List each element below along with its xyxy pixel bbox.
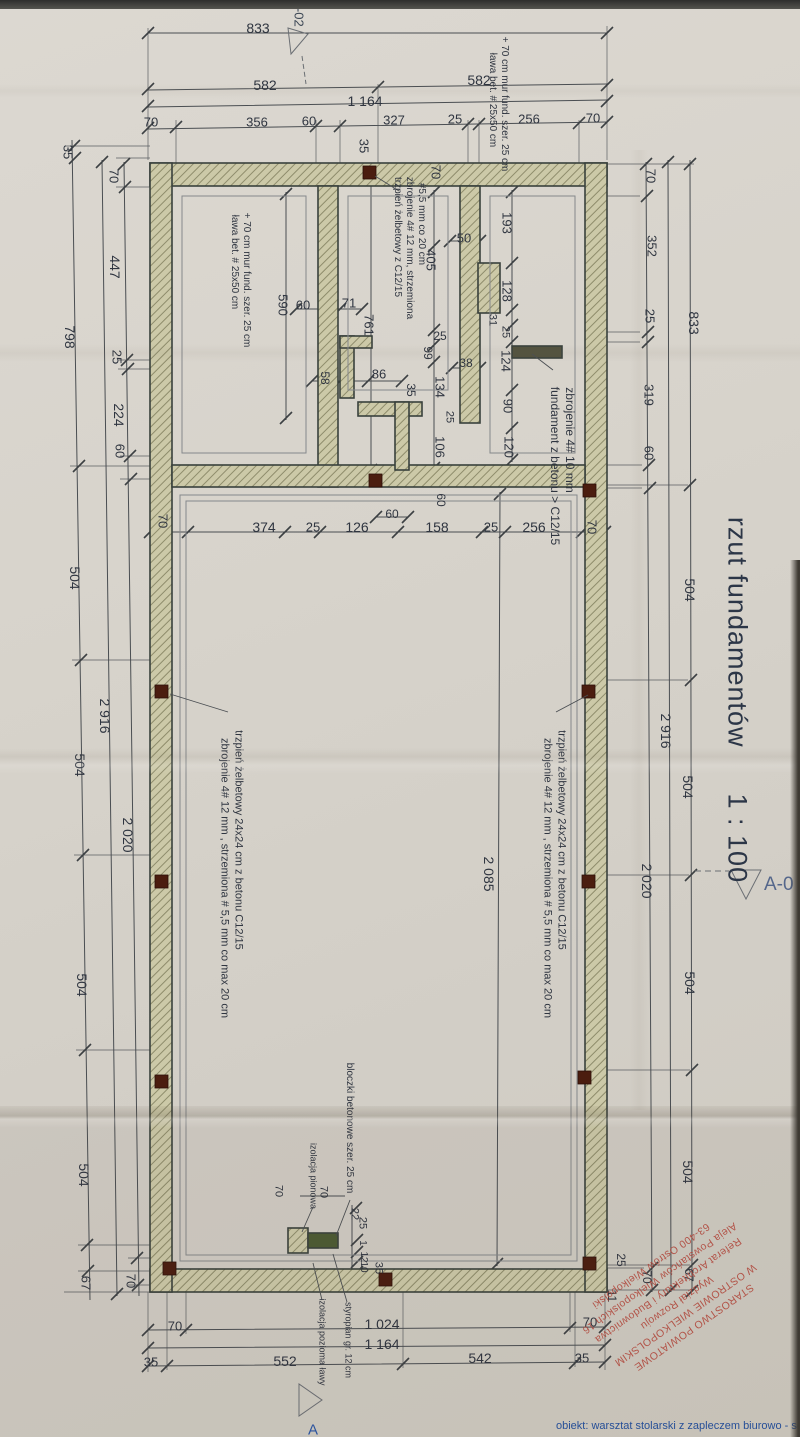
dimension-label: 833	[246, 21, 269, 35]
dimension-label: 833	[687, 311, 701, 334]
annotation-label: zbrojenie 4# 10 mm	[564, 387, 576, 492]
dimension-label: 504	[68, 566, 82, 589]
dimension-label: 70	[144, 116, 158, 129]
dimension-label: 504	[73, 753, 87, 776]
dimension-label: 31	[487, 314, 498, 326]
dimension-label: 38	[459, 357, 472, 369]
annotation-label: ława bet. # 25x50 cm	[487, 53, 497, 148]
dimension-label: 124	[500, 350, 513, 372]
dimension-label: 374	[252, 520, 275, 534]
dimension-label: 128	[501, 280, 514, 302]
annotation-label: fundament z betonu > C12/15	[549, 387, 561, 545]
dimension-label: 319	[643, 384, 656, 406]
annotation-label: #5,5 mm co 20 cm	[416, 183, 426, 265]
annotation-label: izolacja pionowa	[309, 1143, 318, 1209]
dimension-label: 193	[501, 212, 514, 234]
dimension-label: 1 024	[364, 1317, 399, 1331]
dimension-label: 71	[342, 297, 356, 310]
dimension-label: 504	[681, 775, 695, 798]
dimension-label: 356	[246, 116, 268, 129]
photo-edge-top	[0, 0, 800, 9]
annotation-label: trzpień żelbetowy 24x24 cm z betonu C12/…	[556, 730, 567, 950]
dimension-label: 2 085	[482, 856, 496, 891]
dimension-label: 2 916	[98, 698, 112, 733]
scale-label: 1 : 100	[723, 794, 753, 884]
dimension-label: 504	[75, 973, 89, 996]
dimension-label: 590	[277, 294, 290, 316]
dimension-label: 70	[168, 1320, 182, 1333]
dimension-label: 70	[318, 1186, 329, 1198]
drawing-title: rzut fundamentów1 : 100	[722, 517, 753, 883]
dimension-label: 35	[358, 139, 371, 153]
dimension-label: 60	[435, 493, 447, 506]
dimension-label: 86	[372, 368, 386, 381]
dimension-label: 10	[358, 1261, 368, 1272]
dimension-label: 70	[586, 112, 600, 125]
dimension-label: 25	[357, 1217, 368, 1229]
dimension-label: 60	[643, 446, 656, 460]
dimension-label: 70	[430, 165, 443, 179]
dimension-label: 1	[357, 1240, 367, 1246]
dimension-label: 1 164	[364, 1337, 399, 1351]
dimension-label: 35	[373, 1262, 384, 1274]
dimension-label: 256	[522, 520, 545, 534]
dimension-label: 2 916	[659, 713, 673, 748]
dimension-label: 504	[683, 971, 697, 994]
dimension-label: 25	[111, 350, 124, 364]
dimension-label: 60	[385, 508, 398, 520]
dimension-label: 25	[306, 521, 320, 534]
dimension-label: 504	[681, 1160, 695, 1183]
annotation-label: zbrojenie 4# 12 mm , strzemiona # 5,5 mm…	[542, 738, 553, 1018]
dimension-label: 134	[434, 376, 447, 398]
dimension-label: 35	[405, 383, 417, 396]
photographed-foundation-plan: 8335825821 16470356603272525670357035707…	[0, 0, 800, 1437]
title-text: rzut fundamentów	[723, 517, 753, 748]
dimension-label: 70	[108, 169, 121, 183]
dimension-label: 256	[518, 113, 540, 126]
dimension-label: 67	[80, 1276, 93, 1290]
dimension-label: 2 020	[640, 863, 654, 898]
dimension-label: 25	[433, 330, 446, 342]
dimension-label: 158	[425, 520, 448, 534]
dimension-label: 447	[108, 255, 122, 278]
dimension-label: 70	[645, 169, 658, 183]
annotation-label: + 70 cm mur fund. szer. 25 cm	[499, 37, 509, 172]
dimension-label: 99	[422, 346, 434, 359]
annotation-label: trzpień żelbetowy 24x24 cm z betonu C12/…	[233, 730, 244, 950]
annotation-label: styropian gr. 12 cm	[344, 1302, 353, 1378]
dimension-label: 1 164	[347, 94, 382, 108]
dimension-label: 60	[296, 299, 310, 312]
dimension-label: 25	[444, 411, 455, 423]
dimension-label: 582	[253, 78, 276, 92]
dimension-label: 25	[484, 521, 498, 534]
dimension-label: 70	[586, 520, 599, 534]
annotation-label: trzpień żelbetowy z C12/15	[392, 177, 402, 297]
photo-edge-right	[790, 560, 800, 1437]
dimension-label: 70	[125, 1274, 138, 1288]
dimension-label: 58	[319, 371, 331, 384]
dimension-label: 352	[646, 235, 659, 257]
dimension-label: 25	[644, 309, 657, 323]
dimension-label: 35	[144, 1356, 158, 1369]
dimension-label: 70	[273, 1185, 284, 1197]
annotation-label: zbrojenie 4# 12 mm , strzemiona # 5,5 mm…	[219, 738, 230, 1018]
annotation-label: ława bet. # 25x50 cm	[229, 215, 239, 310]
annotation-label: + 70 cm mur fund. szer. 25 cm	[241, 213, 251, 348]
corner-letter: A	[308, 1422, 318, 1437]
annotation-label: izolacja pozioma ławy	[318, 1298, 327, 1385]
foundation-walls	[150, 163, 607, 1292]
dimension-label: 224	[112, 403, 126, 426]
annotation-label: zbrojenie 4# 12 mm, strzemiona	[404, 177, 414, 319]
dimension-label: 60	[114, 444, 127, 458]
dimension-label: 25	[615, 1253, 627, 1266]
dimension-label: 504	[77, 1163, 91, 1186]
dimension-label: 25	[448, 113, 462, 126]
dimension-label: 50	[457, 232, 471, 245]
dimension-label: 90	[502, 399, 515, 413]
dimension-label: 552	[273, 1354, 296, 1368]
dimension-label: 120	[503, 436, 516, 458]
dimension-label: 106	[434, 436, 447, 458]
dimension-label: 542	[468, 1351, 491, 1365]
dimension-label: 35	[62, 145, 75, 159]
dimension-label: 70	[157, 514, 170, 528]
dimension-label: 25	[500, 326, 511, 338]
dimension-label: 327	[383, 114, 405, 127]
annotation-label: bloczki betonowe szer. 25 cm	[344, 1063, 354, 1194]
project-footer-text: obiekt: warsztat stolarski z zapleczem b…	[556, 1420, 800, 1432]
dimension-label: 798	[63, 325, 77, 348]
dimension-label: 60	[302, 115, 316, 128]
dimension-label: 761	[363, 314, 376, 336]
dimension-label: 504	[683, 578, 697, 601]
dimension-label: 2 020	[121, 817, 135, 852]
dimension-label: 126	[345, 520, 368, 534]
